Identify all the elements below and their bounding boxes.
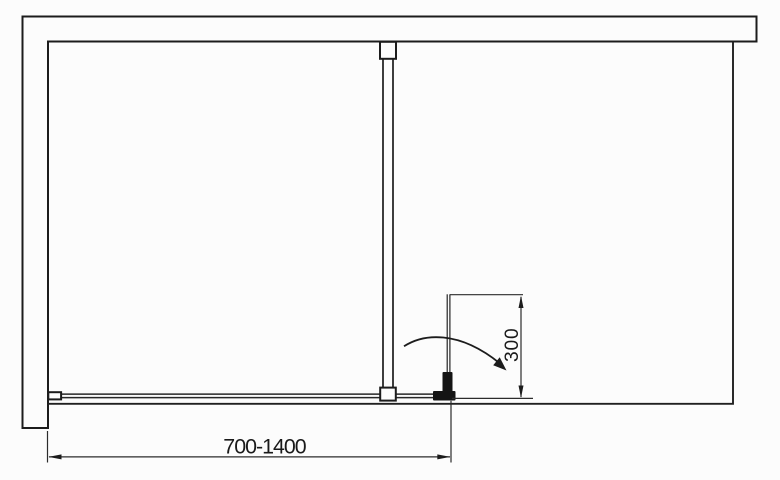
svg-text:300: 300	[502, 328, 523, 362]
svg-text:700-1400: 700-1400	[223, 435, 307, 459]
